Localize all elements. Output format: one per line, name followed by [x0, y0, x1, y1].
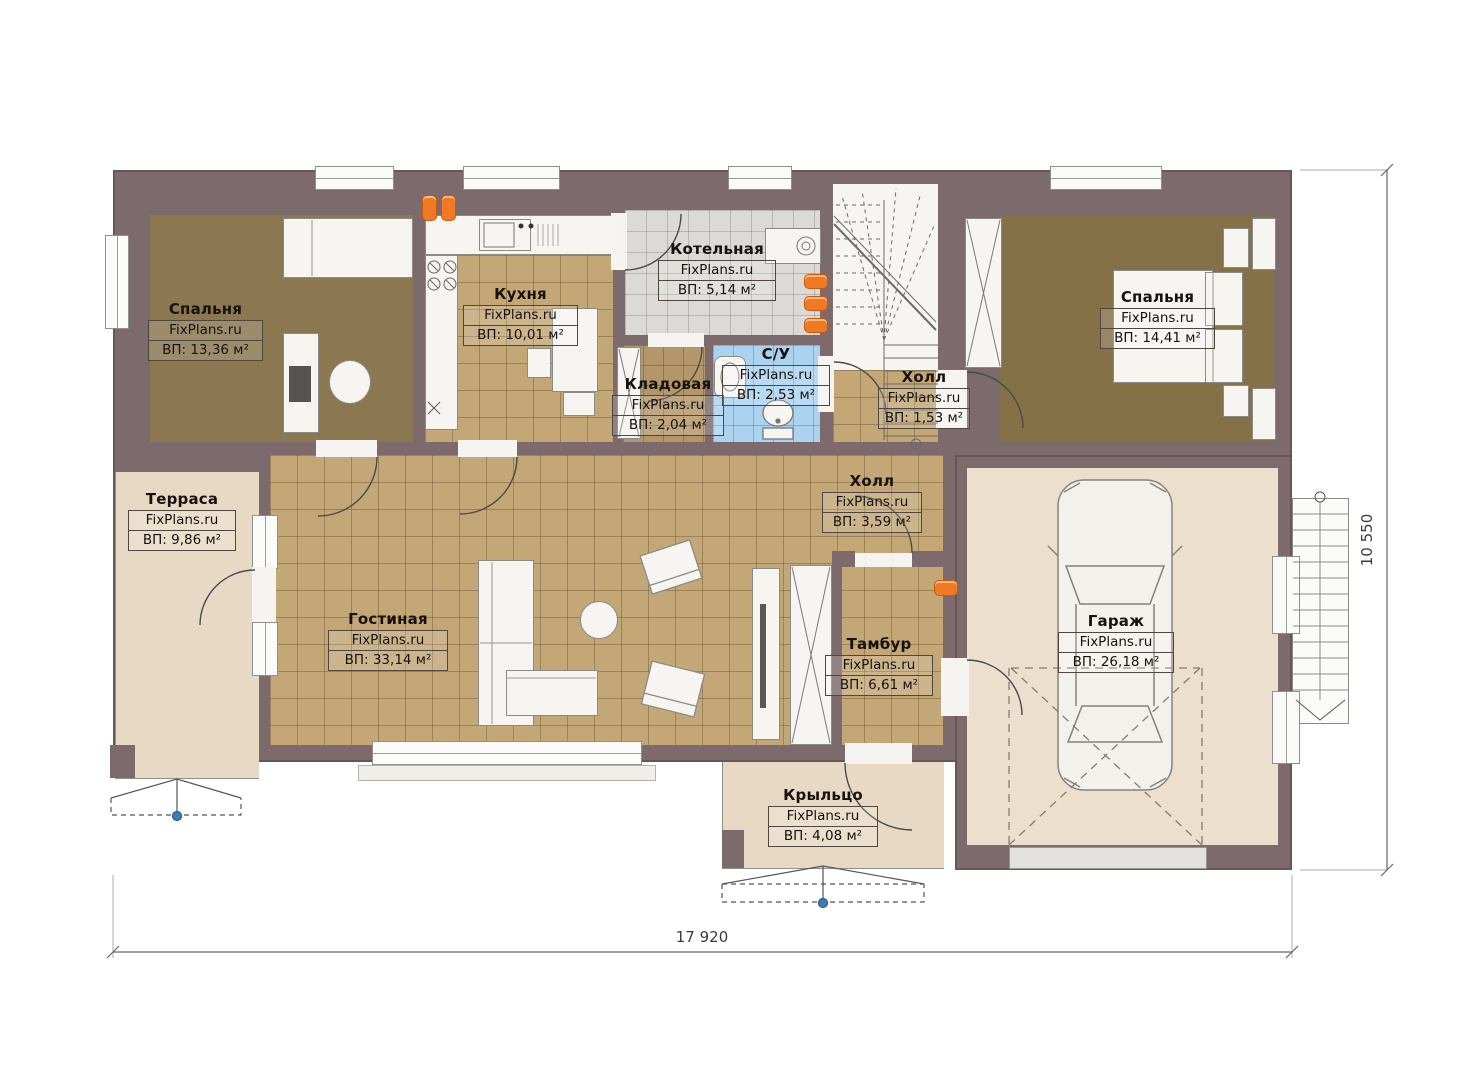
room-label-bedroom-left: Спальня FixPlans.ru ВП: 13,36 м²: [148, 300, 263, 361]
wardrobe-bedroom-right: [965, 218, 1002, 368]
room-name: Холл: [878, 368, 970, 386]
room-label-storage: Кладовая FixPlans.ru ВП: 2,04 м²: [612, 375, 724, 436]
room-area: ВП: 10,01 м²: [464, 326, 577, 345]
door-opening-hall: [855, 553, 912, 567]
room-name: С/У: [722, 345, 830, 363]
window-bedroom-left-side: [105, 235, 129, 329]
radiator-icon: [804, 318, 828, 333]
tv-stand: [752, 568, 780, 740]
door-opening-storage: [648, 333, 704, 347]
room-area: ВП: 3,59 м²: [823, 513, 921, 532]
watermark: FixPlans.ru: [1059, 633, 1173, 653]
desk-chair: [329, 360, 371, 404]
room-area: ВП: 4,08 м²: [769, 827, 877, 846]
watermark: FixPlans.ru: [329, 631, 447, 651]
watermark: FixPlans.ru: [879, 389, 969, 409]
bed-left: [283, 218, 413, 278]
room-name: Гараж: [1058, 612, 1174, 630]
watermark: FixPlans.ru: [613, 396, 723, 416]
window-bedroom-left-top: [315, 166, 394, 190]
room-area: ВП: 26,18 м²: [1059, 653, 1173, 672]
door-opening-terrace: [252, 567, 276, 622]
room-label-living-room: Гостиная FixPlans.ru ВП: 33,14 м²: [328, 610, 448, 671]
window-living-room: [372, 741, 642, 765]
window-kitchen-top: [463, 166, 560, 190]
watermark: FixPlans.ru: [1101, 309, 1214, 329]
room-label-boiler: Котельная FixPlans.ru ВП: 5,14 м²: [658, 240, 776, 301]
kitchen-counter-left: [425, 255, 458, 430]
room-area: ВП: 5,14 м²: [659, 281, 775, 300]
room-area: ВП: 1,53 м²: [879, 409, 969, 428]
room-name: Терраса: [128, 490, 236, 508]
watermark: FixPlans.ru: [723, 366, 829, 386]
floor-plan: Спальня FixPlans.ru ВП: 13,36 м² Кухня F…: [0, 0, 1474, 1080]
room-label-garage: Гараж FixPlans.ru ВП: 26,18 м²: [1058, 612, 1174, 673]
nightstand-top: [1223, 228, 1249, 268]
terrace-corner-post: [110, 745, 135, 778]
room-area: ВП: 2,53 м²: [723, 386, 829, 405]
radiator-icon: [804, 296, 828, 311]
watermark: FixPlans.ru: [129, 511, 235, 531]
room-label-hall-small: Холл FixPlans.ru ВП: 1,53 м²: [878, 368, 970, 429]
wall-hall-divider-left: [832, 551, 855, 567]
radiator-icon: [441, 195, 456, 221]
room-name: Кухня: [463, 285, 578, 303]
door-opening-bedroom-left: [316, 440, 377, 457]
room-area: ВП: 13,36 м²: [149, 341, 262, 360]
window-garage-lower: [1272, 691, 1300, 764]
room-name: Крыльцо: [768, 786, 878, 804]
radiator-icon: [422, 195, 437, 221]
room-name: Гостиная: [328, 610, 448, 628]
room-area: ВП: 14,41 м²: [1101, 329, 1214, 348]
niche-pier-bottom: [1252, 388, 1276, 440]
room-label-terrace: Терраса FixPlans.ru ВП: 9,86 м²: [128, 490, 236, 551]
window-terrace-upper: [252, 515, 278, 569]
room-label-kitchen: Кухня FixPlans.ru ВП: 10,01 м²: [463, 285, 578, 346]
window-bedroom-right-top: [1050, 166, 1162, 190]
room-label-porch: Крыльцо FixPlans.ru ВП: 4,08 м²: [768, 786, 878, 847]
nightstand-bottom: [1223, 385, 1249, 417]
room-name: Котельная: [658, 240, 776, 258]
room-area: ВП: 2,04 м²: [613, 416, 723, 435]
tv: [760, 604, 766, 708]
sofa-chaise: [506, 670, 598, 716]
garage-door: [1009, 847, 1207, 869]
terrace-gable: [111, 779, 241, 821]
dimension-width-label: 17 920: [602, 928, 802, 946]
kitchen-chair-bottom: [563, 392, 595, 416]
porch-gable: [722, 866, 924, 908]
dimension-height-label: 10 550: [1358, 490, 1376, 590]
watermark: FixPlans.ru: [464, 306, 577, 326]
watermark: FixPlans.ru: [823, 493, 921, 513]
room-name: Спальня: [148, 300, 263, 318]
room-label-vestibule: Тамбур FixPlans.ru ВП: 6,61 м²: [825, 635, 933, 696]
door-opening-boiler: [611, 213, 627, 270]
room-area: ВП: 9,86 м²: [129, 531, 235, 550]
door-opening-kitchen: [458, 440, 517, 457]
watermark: FixPlans.ru: [769, 807, 877, 827]
watermark: FixPlans.ru: [826, 656, 932, 676]
door-opening-garage-side: [941, 658, 969, 716]
radiator-icon: [804, 274, 828, 289]
watermark: FixPlans.ru: [149, 321, 262, 341]
radiator-icon: [934, 580, 958, 596]
window-sill-living: [358, 765, 656, 781]
coffee-table: [580, 601, 618, 639]
wall-hall-divider-right: [912, 551, 943, 567]
room-name: Холл: [822, 472, 922, 490]
room-area: ВП: 33,14 м²: [329, 651, 447, 670]
room-area: ВП: 6,61 м²: [826, 676, 932, 695]
window-terrace-lower: [252, 622, 278, 676]
kitchen-sink: [479, 219, 531, 251]
room-label-bedroom-right: Спальня FixPlans.ru ВП: 14,41 м²: [1100, 288, 1215, 349]
desk-laptop: [289, 366, 311, 402]
door-opening-entrance: [845, 743, 912, 764]
kitchen-chair-left: [527, 348, 551, 378]
room-label-bathroom: С/У FixPlans.ru ВП: 2,53 м²: [722, 345, 830, 406]
room-name: Кладовая: [612, 375, 724, 393]
niche-pier-top: [1252, 218, 1276, 270]
exterior-stairs: [1292, 498, 1349, 724]
window-garage-upper: [1272, 556, 1300, 634]
floor-staircase: [833, 184, 938, 370]
window-boiler-top: [728, 166, 792, 190]
porch-corner-post: [722, 830, 744, 868]
room-name: Спальня: [1100, 288, 1215, 306]
watermark: FixPlans.ru: [659, 261, 775, 281]
room-name: Тамбур: [825, 635, 933, 653]
room-label-hall: Холл FixPlans.ru ВП: 3,59 м²: [822, 472, 922, 533]
